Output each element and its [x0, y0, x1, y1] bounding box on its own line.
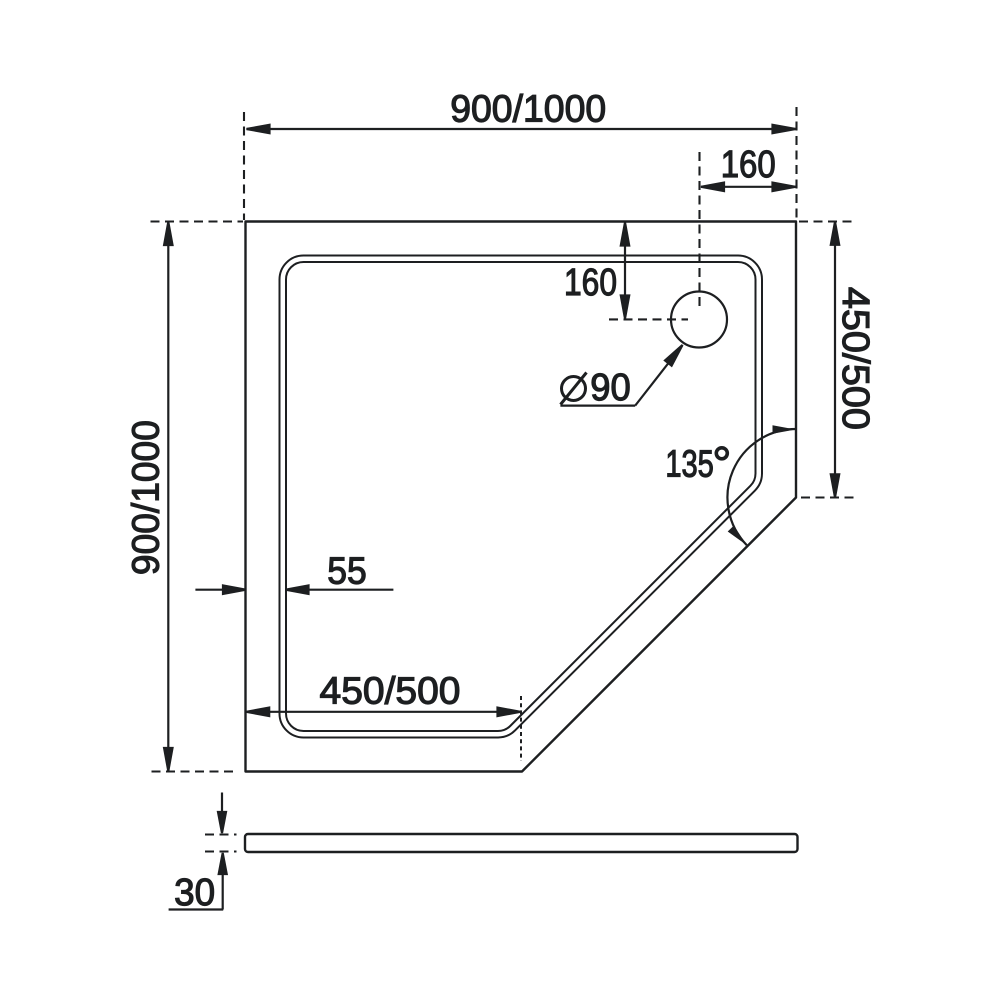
svg-text:450/500: 450/500 — [834, 287, 876, 430]
svg-text:30: 30 — [174, 872, 215, 914]
svg-text:900/1000: 900/1000 — [450, 88, 606, 130]
svg-text:160: 160 — [721, 144, 776, 186]
svg-text:450/500: 450/500 — [320, 671, 461, 713]
svg-text:135: 135 — [665, 443, 714, 485]
svg-text:90: 90 — [590, 367, 631, 409]
svg-text:160: 160 — [564, 262, 617, 304]
svg-text:55: 55 — [327, 551, 367, 593]
svg-text:900/1000: 900/1000 — [125, 420, 167, 575]
